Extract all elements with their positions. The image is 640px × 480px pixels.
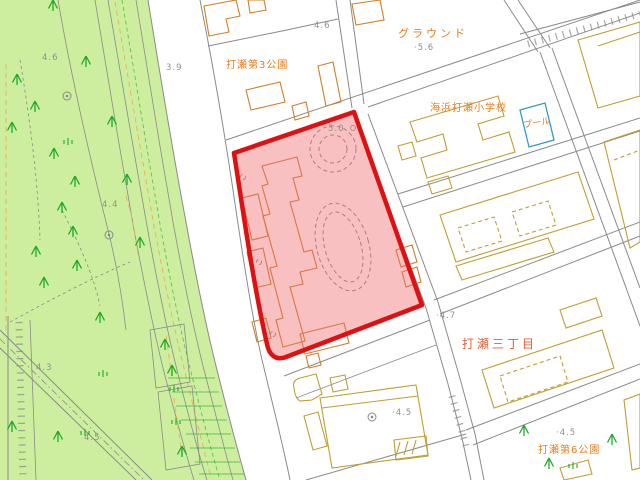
- monument-icon: [368, 413, 376, 421]
- spot-elevation: ·4.5: [392, 408, 412, 418]
- tree-icon: [545, 458, 554, 469]
- spot-elevation: 4.6: [42, 53, 59, 63]
- tree-icon: [608, 434, 617, 445]
- selected-parcel-highlight[interactable]: [234, 112, 422, 358]
- building: [204, 0, 240, 36]
- spot-elevation: 4.4: [102, 200, 119, 210]
- park-green-area: [0, 0, 246, 480]
- park6-label: 打瀬第6公園: [538, 443, 600, 456]
- bottom-block-buildings: [294, 374, 428, 468]
- spot-elevation: ·5.6: [414, 43, 434, 53]
- spot-elevation: 4.3: [36, 363, 53, 373]
- park3-label: 打瀬第3公園: [226, 58, 288, 71]
- school-label: 海浜打瀬小学校: [430, 101, 507, 114]
- district-label: 打瀬三丁目: [462, 337, 537, 351]
- ground-label: グラウンド: [398, 26, 468, 40]
- road-ticks: [452, 396, 466, 446]
- spot-elevation: 4.5: [84, 433, 101, 443]
- spot-elevation: 3.9: [166, 63, 183, 73]
- spot-elevation: 5.0: [328, 124, 345, 134]
- spot-elevation: 4.6: [314, 21, 331, 31]
- spot-elevation: ·4.7: [436, 311, 456, 321]
- tree-icon: [520, 425, 529, 436]
- map-canvas[interactable]: グラウンド 打瀬第3公園 海浜打瀬小学校 プール 打瀬三丁目 打瀬第6公園 ·5…: [0, 0, 640, 480]
- pool-label: プール: [523, 115, 552, 131]
- map-svg: グラウンド 打瀬第3公園 海浜打瀬小学校 プール 打瀬三丁目 打瀬第6公園 ·5…: [0, 0, 640, 480]
- spot-elevation: ·4.5: [556, 428, 576, 438]
- park-layer: [0, 0, 246, 480]
